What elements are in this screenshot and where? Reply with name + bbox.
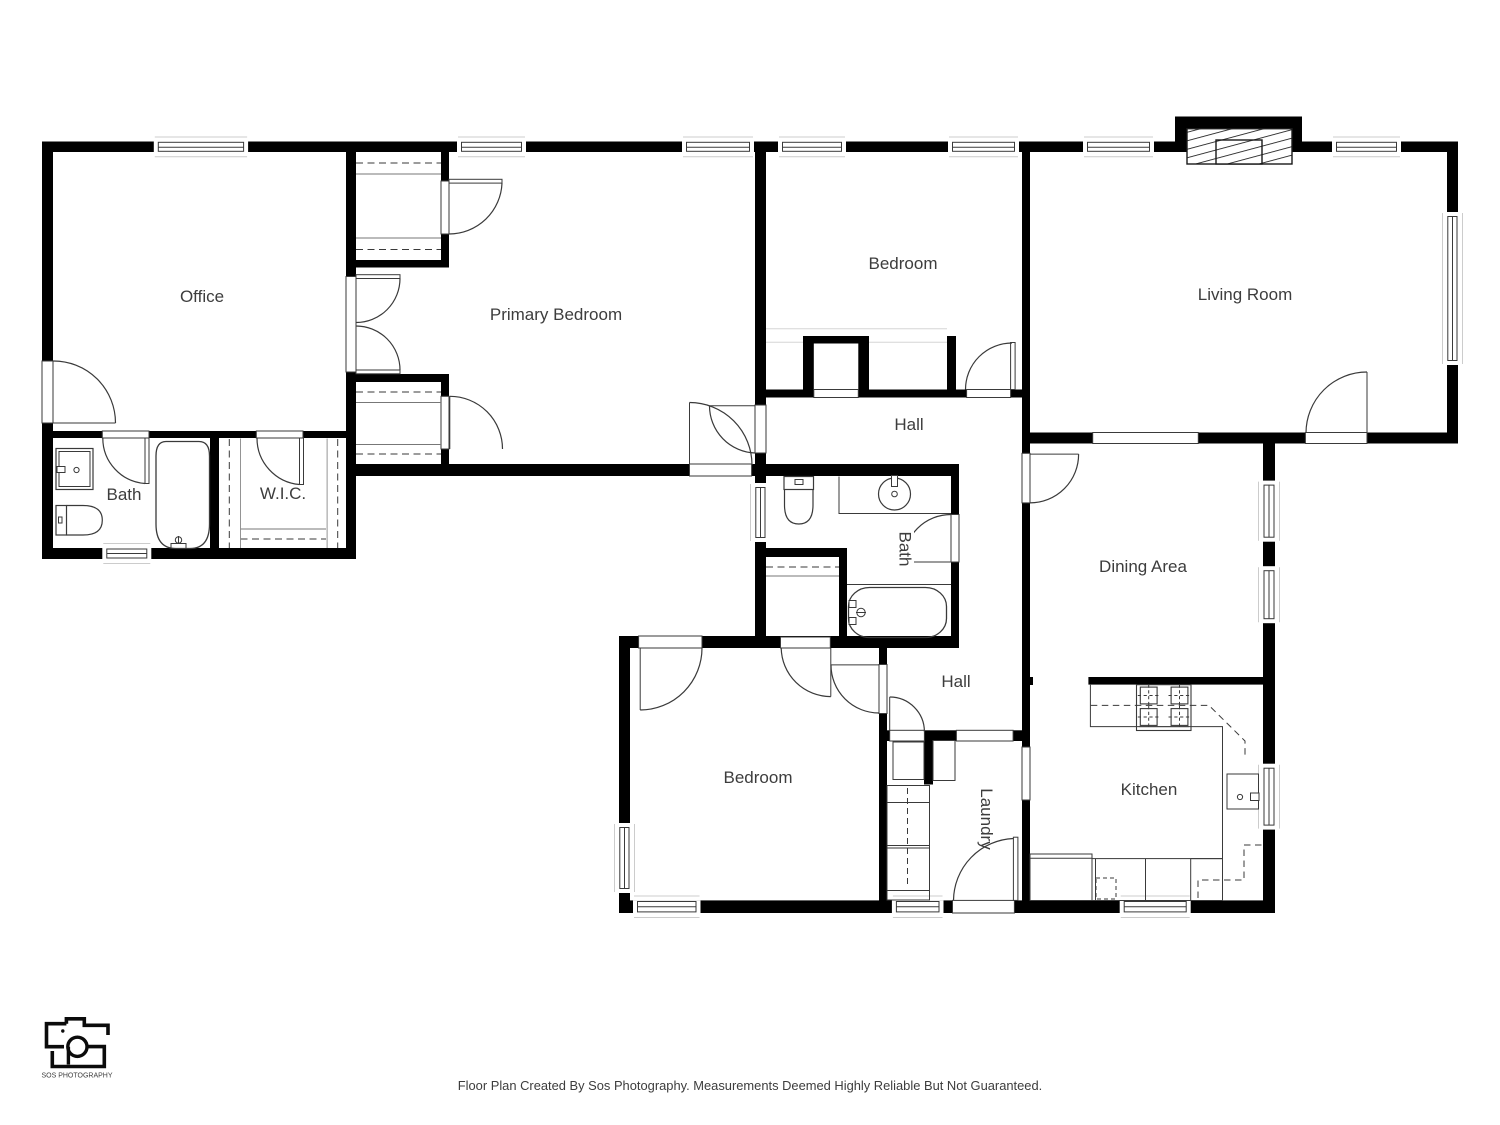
- svg-text:Bedroom: Bedroom: [869, 254, 938, 273]
- svg-text:Office: Office: [180, 287, 224, 306]
- svg-text:W.I.C.: W.I.C.: [260, 484, 306, 503]
- svg-text:Living Room: Living Room: [1198, 285, 1293, 304]
- svg-text:Laundry: Laundry: [977, 788, 996, 850]
- svg-text:Dining Area: Dining Area: [1099, 557, 1187, 576]
- svg-text:Bath: Bath: [107, 485, 142, 504]
- svg-text:Kitchen: Kitchen: [1121, 780, 1178, 799]
- svg-text:Floor Plan Created By Sos Phot: Floor Plan Created By Sos Photography. M…: [458, 1078, 1042, 1093]
- svg-text:Hall: Hall: [894, 415, 923, 434]
- svg-text:Bedroom: Bedroom: [724, 768, 793, 787]
- svg-text:Bath: Bath: [896, 532, 915, 567]
- svg-text:Hall: Hall: [941, 672, 970, 691]
- svg-text:Primary Bedroom: Primary Bedroom: [490, 305, 622, 324]
- svg-text:SOS PHOTOGRAPHY: SOS PHOTOGRAPHY: [41, 1073, 112, 1080]
